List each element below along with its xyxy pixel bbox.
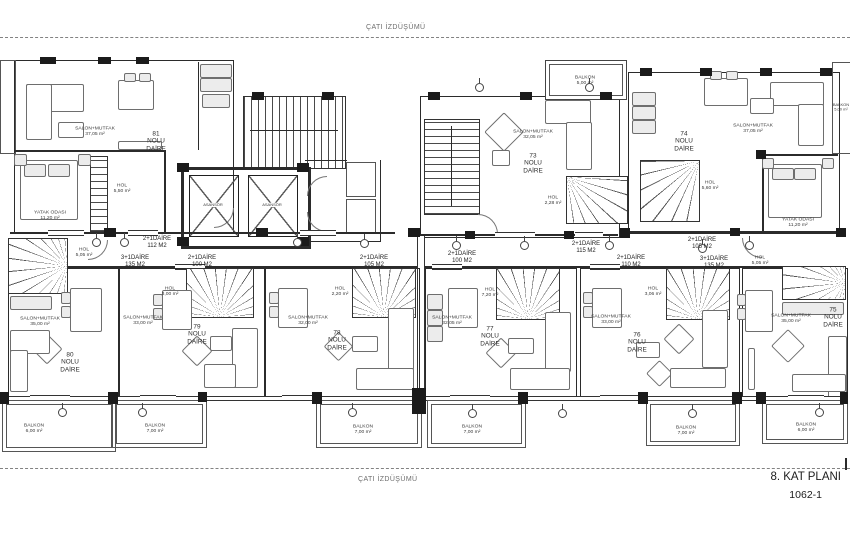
sofa (26, 84, 52, 140)
pillar (412, 388, 426, 414)
pillar (732, 392, 742, 404)
sofa (545, 100, 591, 124)
tv-console (118, 141, 162, 150)
kitchen-counter (200, 78, 232, 92)
axis-marker (138, 408, 147, 417)
pillar (638, 392, 648, 404)
pillar (730, 228, 740, 236)
sofa (566, 122, 592, 170)
chair (153, 294, 163, 306)
side-table (492, 150, 510, 166)
nightstand (822, 158, 834, 169)
axis-marker (698, 244, 707, 253)
pillar (756, 392, 766, 404)
kitchen-counter (200, 64, 232, 78)
coffee-table (58, 122, 84, 138)
chair (737, 294, 746, 306)
pillar (756, 150, 766, 159)
sofa (204, 364, 236, 388)
chair (124, 73, 136, 82)
sofa (702, 310, 728, 368)
chair (61, 306, 71, 318)
unit-size-label: 2+1DAİRE 115 M2 (572, 240, 600, 254)
pillar (840, 392, 848, 404)
axis-marker (585, 83, 594, 92)
coffee-table (636, 342, 660, 358)
kitchen-counter (427, 326, 443, 342)
roof-projection-line-top (0, 37, 850, 38)
dining-table (745, 290, 773, 332)
pillar (98, 57, 111, 64)
side-balcony-74 (832, 62, 850, 154)
axis-marker (688, 409, 697, 418)
balcony-75-inner (766, 404, 844, 440)
sofa (770, 82, 824, 106)
axis-marker (348, 408, 357, 417)
stair-73 (424, 119, 480, 215)
coffee-table (508, 338, 534, 354)
floor-plan-sheet: ÇATI İZDÜŞÜMÜ ÇATI İZDÜŞÜMÜ 8. KAT PLANI… (0, 0, 850, 550)
nightstand (78, 154, 91, 166)
dining-table (704, 78, 748, 106)
pillar (640, 68, 652, 76)
wall (305, 160, 347, 161)
plan-number: 1062-1 (789, 489, 822, 501)
pillar (760, 68, 772, 76)
chair (726, 71, 738, 80)
winder-stair-79 (186, 268, 254, 318)
pillar (136, 57, 149, 64)
nightstand (14, 154, 27, 166)
pillar (104, 228, 116, 237)
sofa (670, 368, 726, 388)
kitchen-counter (632, 92, 656, 106)
pillar (518, 392, 528, 404)
sofa (510, 368, 570, 390)
chair (153, 308, 163, 320)
winder-stair-75 (782, 266, 846, 300)
dining-table (592, 288, 622, 328)
wall (380, 160, 381, 242)
chair (737, 308, 746, 320)
pillar (564, 231, 574, 239)
pillow (794, 168, 816, 180)
pillar (108, 392, 118, 404)
balcony-77-inner (431, 404, 522, 444)
roof-projection-label-top: ÇATI İZDÜŞÜMÜ (366, 24, 426, 31)
pillar (252, 92, 264, 100)
sofa (545, 312, 571, 372)
pillar (620, 228, 630, 238)
axis-marker (360, 239, 369, 248)
pillar (820, 68, 832, 76)
pillow (772, 168, 794, 180)
wall (164, 150, 166, 232)
chair (61, 292, 71, 304)
axis-marker (452, 241, 461, 250)
axis-marker (605, 241, 614, 250)
kitchen-counter (427, 310, 443, 326)
side-balcony-left (0, 60, 16, 154)
wall (14, 150, 166, 152)
kitchen-counter (202, 94, 230, 108)
main-stair (243, 96, 346, 169)
chair (139, 73, 151, 82)
axis-marker (468, 409, 477, 418)
pillar (600, 92, 612, 100)
axis-marker (293, 238, 302, 247)
pillow (24, 164, 46, 177)
sofa (792, 374, 846, 392)
pillar (836, 228, 846, 237)
unit-size-label: 2+1DAİRE 112 M2 (143, 235, 171, 249)
pillar (198, 392, 207, 402)
stair-rail (250, 130, 338, 131)
pillar (465, 231, 475, 239)
radiator (748, 348, 755, 390)
kitchen-counter (632, 120, 656, 134)
kitchen-counter (10, 296, 52, 310)
pillar (0, 392, 9, 404)
chair (269, 306, 279, 318)
axis-marker (745, 241, 754, 250)
axis-marker (58, 408, 67, 417)
pillar (322, 92, 334, 100)
kitchen-counter (782, 302, 844, 315)
wall (305, 241, 381, 242)
pillar (177, 163, 189, 172)
closet (346, 162, 376, 197)
coffee-table (750, 98, 774, 114)
balcony-78-inner (320, 404, 418, 444)
coffee-table (210, 336, 232, 351)
pillar (256, 228, 268, 237)
kitchen-counter (632, 106, 656, 120)
dining-table (448, 288, 478, 328)
nightstand (762, 158, 774, 169)
axis-marker (520, 241, 529, 250)
axis-marker (92, 238, 101, 247)
dining-table (278, 288, 308, 328)
sheet-edge-tick (845, 458, 847, 470)
elevator-shaft (189, 175, 239, 237)
unit-size-label: 2+1DAİRE 100 M2 (448, 250, 476, 264)
winder-stair-73 (566, 176, 628, 224)
closet (346, 199, 376, 233)
wall (762, 154, 838, 156)
pillar (408, 228, 420, 237)
axis-marker (120, 238, 129, 247)
kitchen-counter (427, 294, 443, 310)
pillow (48, 164, 70, 177)
chair (583, 292, 593, 304)
plan-title: 8. KAT PLANI (770, 471, 841, 483)
chair (583, 306, 593, 318)
pillar (40, 57, 56, 64)
pillar (520, 92, 532, 100)
window (300, 230, 336, 236)
pillar (177, 237, 189, 246)
roof-projection-label-bottom: ÇATI İZDÜŞÜMÜ (358, 476, 418, 483)
pillar (700, 68, 712, 76)
chair (269, 292, 279, 304)
pillar (428, 92, 440, 100)
sofa (798, 104, 824, 146)
balcony-79-inner (116, 404, 203, 444)
winder-stair-80 (8, 238, 68, 294)
window (48, 230, 84, 236)
roof-projection-line-bottom (0, 468, 850, 469)
pillar (297, 163, 309, 172)
axis-marker (815, 408, 824, 417)
axis-marker (475, 83, 484, 92)
stair-rail (451, 126, 452, 206)
service-stair (90, 156, 108, 232)
window (575, 232, 603, 238)
dining-table (70, 288, 102, 332)
window (600, 395, 640, 401)
window (128, 230, 158, 236)
sofa (10, 350, 28, 392)
coffee-table (352, 336, 378, 352)
dining-table (118, 80, 154, 110)
wall (198, 62, 199, 150)
window (495, 232, 535, 238)
dining-table (162, 290, 192, 330)
sofa (356, 368, 414, 390)
axis-marker (558, 409, 567, 418)
pillar (312, 392, 322, 404)
sofa (388, 308, 414, 370)
winder-stair-74 (640, 160, 700, 222)
